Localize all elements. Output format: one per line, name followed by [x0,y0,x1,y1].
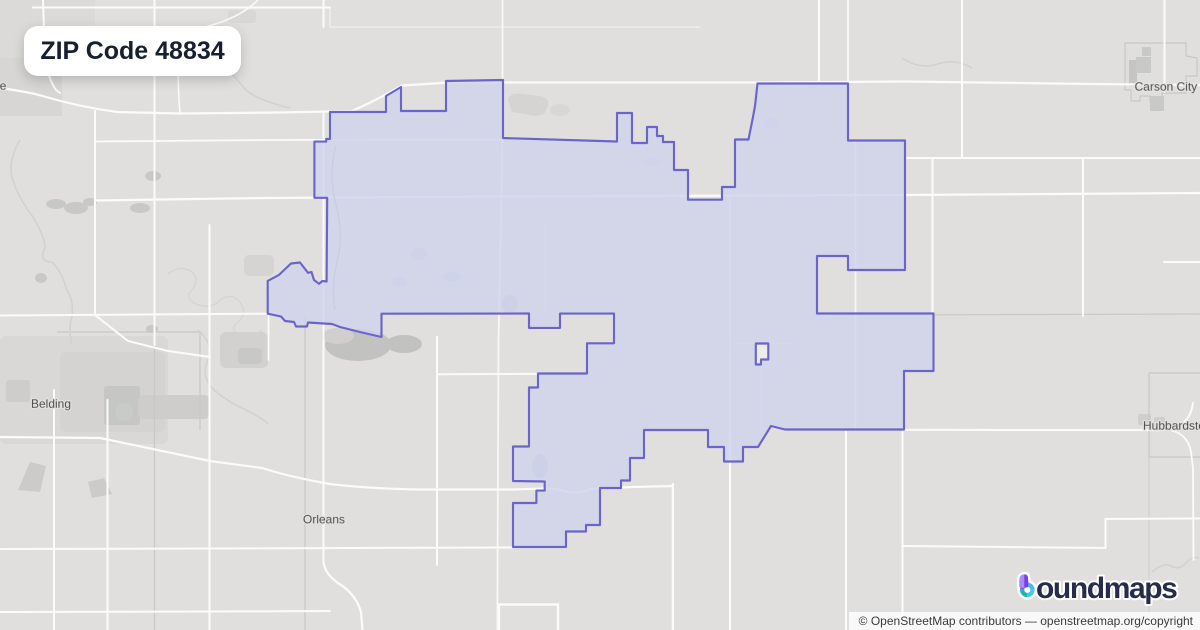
svg-text:Hubbardston: Hubbardston [1143,419,1200,433]
svg-text:Carson City: Carson City [1135,80,1198,94]
svg-text:oundmaps: oundmaps [1036,572,1177,605]
svg-text:le: le [0,79,7,93]
svg-text:Belding: Belding [31,397,71,411]
svg-text:Orleans: Orleans [303,512,345,526]
